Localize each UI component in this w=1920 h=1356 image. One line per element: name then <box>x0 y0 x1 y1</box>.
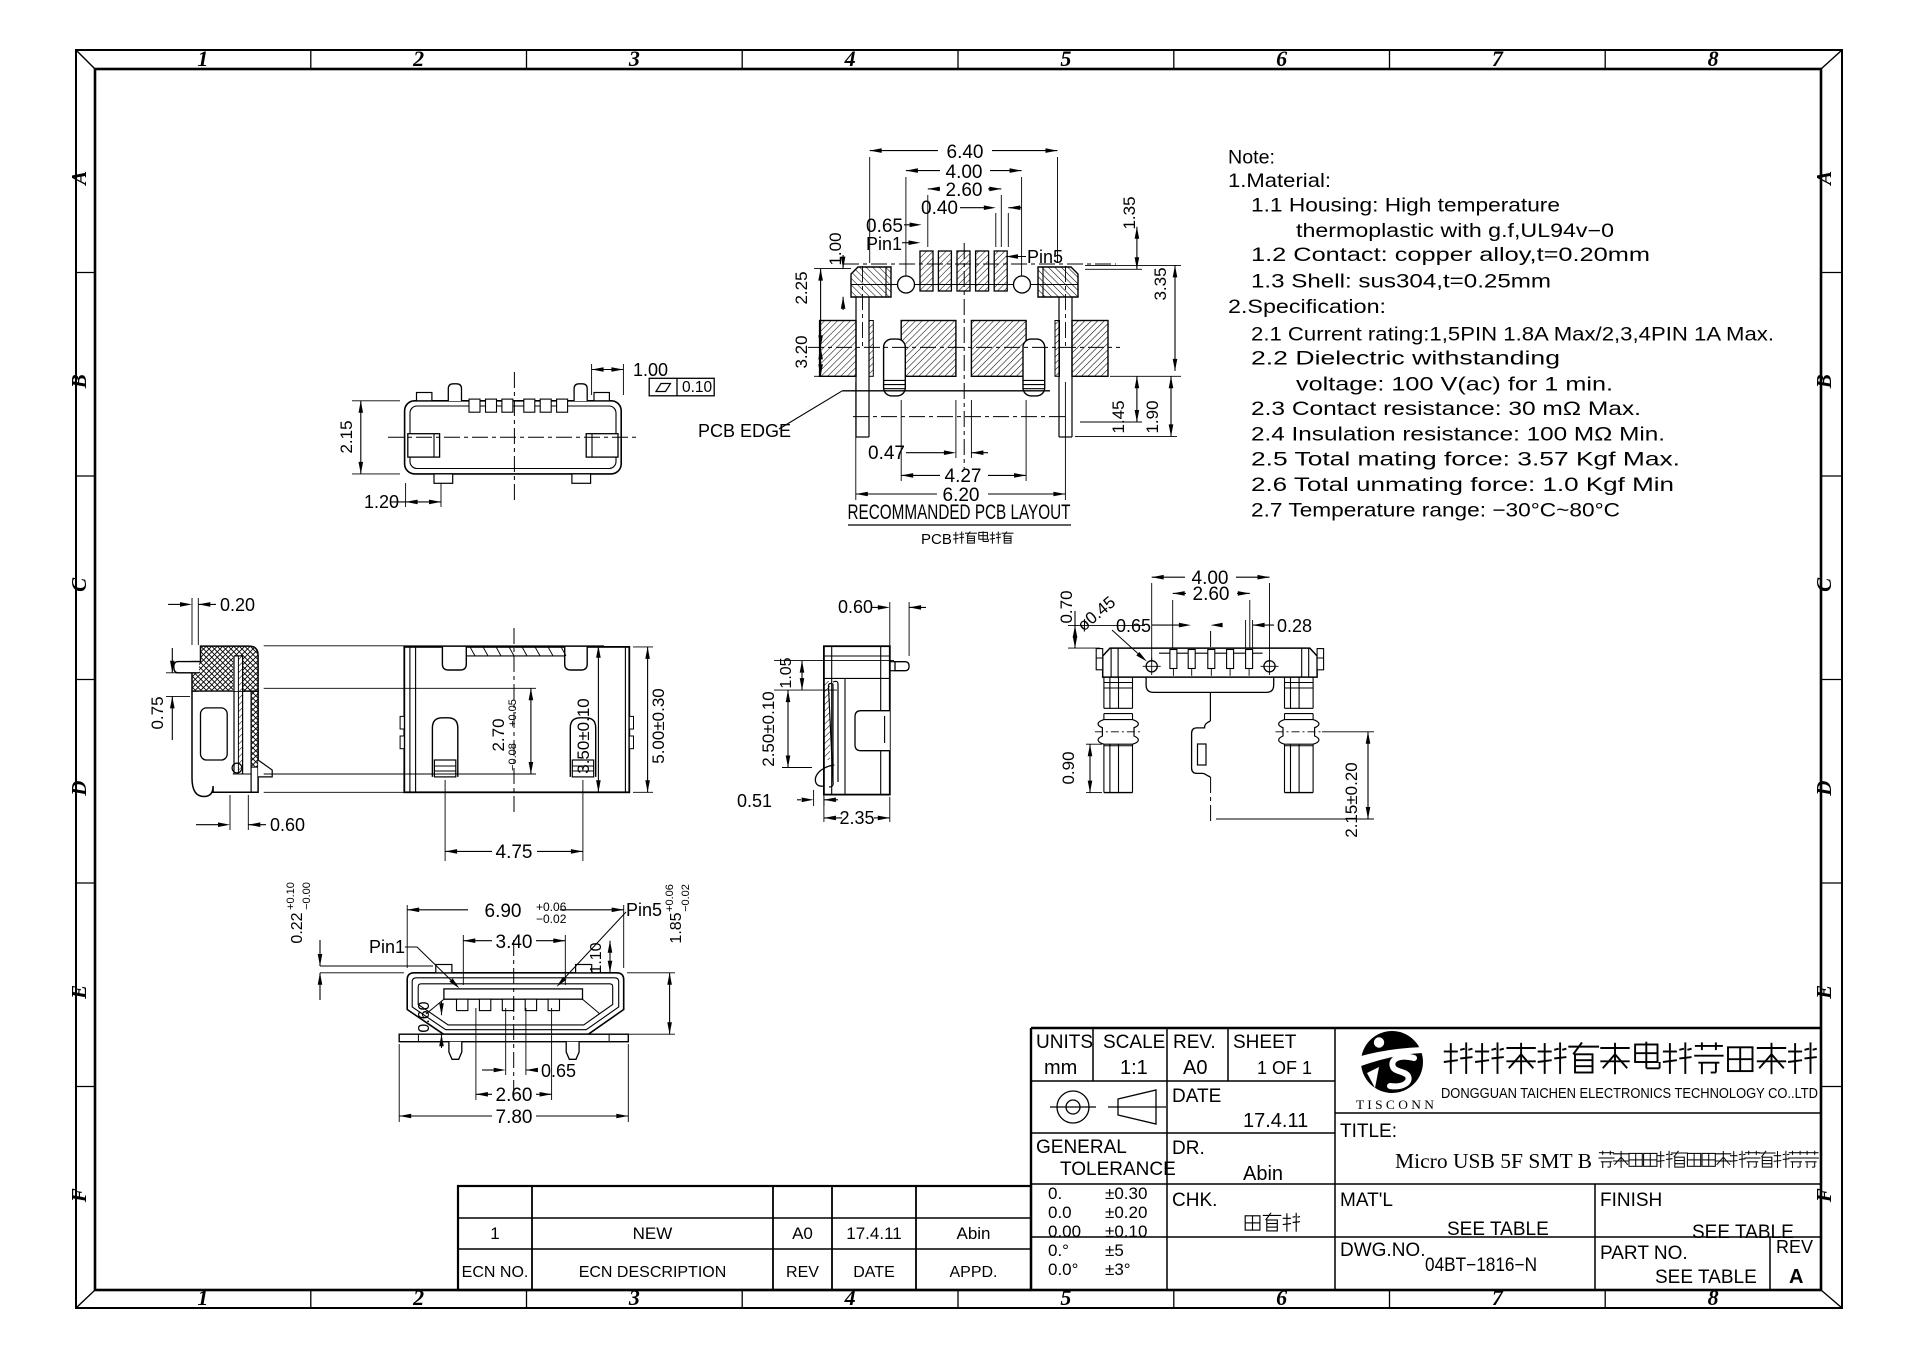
svg-text:5: 5 <box>1060 46 1071 71</box>
svg-text:2.60: 2.60 <box>496 1085 533 1106</box>
svg-text:1.3 Shell: sus304,t=0.25mm: 1.3 Shell: sus304,t=0.25mm <box>1251 271 1551 293</box>
svg-text:1.20: 1.20 <box>364 492 399 512</box>
svg-text:A: A <box>1812 171 1836 187</box>
svg-text:4.75: 4.75 <box>496 842 533 863</box>
svg-text:5: 5 <box>1060 1285 1071 1310</box>
svg-text:−0.02: −0.02 <box>680 884 692 912</box>
svg-text:+0.10: +0.10 <box>285 882 297 910</box>
svg-text:6.90: 6.90 <box>485 901 522 922</box>
svg-text:2.70: 2.70 <box>489 718 508 751</box>
svg-text:−0.02: −0.02 <box>536 912 567 926</box>
svg-text:±0.20: ±0.20 <box>1105 1203 1147 1222</box>
svg-text:2.2 Dielectric withstanding: 2.2 Dielectric withstanding <box>1251 347 1560 369</box>
svg-text:1.90: 1.90 <box>1143 400 1162 433</box>
svg-text:−0.00: −0.00 <box>301 882 313 910</box>
svg-text:TITLE:: TITLE: <box>1340 1121 1397 1142</box>
svg-text:3: 3 <box>628 46 640 71</box>
svg-text:GENERAL: GENERAL <box>1036 1137 1127 1158</box>
svg-text:±0.10: ±0.10 <box>1105 1222 1147 1241</box>
svg-text:MAT'L: MAT'L <box>1340 1190 1393 1211</box>
svg-text:APPD.: APPD. <box>949 1264 997 1281</box>
svg-text:0.20: 0.20 <box>220 595 255 615</box>
svg-text:17.4.11: 17.4.11 <box>1243 1110 1308 1132</box>
svg-text:1.00: 1.00 <box>633 360 668 380</box>
svg-text:voltage: 100 V(ac) for 1: voltage: 100 V(ac) for 1 min. <box>1296 374 1613 396</box>
svg-text:1.05: 1.05 <box>778 657 795 688</box>
svg-text:2.5 Total mating force: 3.: 2.5 Total mating force: 3.57 Kgf Max. <box>1251 449 1680 471</box>
svg-text:3.20: 3.20 <box>792 335 811 368</box>
svg-text:C: C <box>67 577 91 592</box>
svg-text:SCALE: SCALE <box>1103 1032 1165 1053</box>
svg-text:4: 4 <box>844 1285 856 1310</box>
svg-text:4: 4 <box>844 46 856 71</box>
svg-text:B: B <box>1812 374 1836 389</box>
svg-text:TOLERANCE: TOLERANCE <box>1060 1159 1176 1180</box>
svg-text:F: F <box>67 1188 91 1203</box>
svg-text:2.4 Insulation resistance:: 2.4 Insulation resistance: 100 MΩ Min. <box>1251 424 1665 446</box>
svg-text:04BT−1816−N: 04BT−1816−N <box>1425 1255 1537 1276</box>
svg-text:7.80: 7.80 <box>496 1107 533 1128</box>
svg-text:0.65: 0.65 <box>541 1061 576 1081</box>
svg-text:+0.05: +0.05 <box>507 699 519 727</box>
svg-text:7: 7 <box>1492 46 1504 71</box>
svg-text:0.60: 0.60 <box>416 1001 433 1032</box>
svg-text:A0: A0 <box>792 1224 813 1243</box>
svg-text:5.00±0.30: 5.00±0.30 <box>649 688 668 764</box>
svg-text:2.15: 2.15 <box>337 420 356 453</box>
svg-text:0.65: 0.65 <box>1116 616 1151 636</box>
svg-text:0.00: 0.00 <box>1048 1222 1081 1241</box>
svg-text:ECN DESCRIPTION: ECN DESCRIPTION <box>579 1264 727 1281</box>
svg-text:1: 1 <box>197 1285 208 1310</box>
svg-text:DONGGUAN TAICHEN ELECTRONICS: DONGGUAN TAICHEN ELECTRONICS TECHNOLOGY … <box>1441 1086 1818 1102</box>
svg-text:E: E <box>1812 985 1836 1000</box>
svg-text:0.47: 0.47 <box>868 443 905 464</box>
svg-text:0.°: 0.° <box>1048 1241 1069 1260</box>
svg-text:1.85: 1.85 <box>668 912 685 943</box>
svg-text:±5: ±5 <box>1105 1241 1124 1260</box>
svg-text:C: C <box>1812 577 1836 592</box>
svg-text:Micro USB 5F SMT B: Micro USB 5F SMT B <box>1395 1149 1592 1173</box>
svg-text:0.60: 0.60 <box>270 815 305 835</box>
svg-text:3.50±0.10: 3.50±0.10 <box>574 698 593 774</box>
svg-text:F: F <box>1812 1188 1836 1203</box>
svg-text:2: 2 <box>412 46 424 71</box>
svg-text:0.40: 0.40 <box>921 198 958 219</box>
svg-text:2.50±0.10: 2.50±0.10 <box>759 691 778 767</box>
svg-text:PCB EDGE: PCB EDGE <box>698 421 791 441</box>
svg-text:Pin1: Pin1 <box>369 937 405 957</box>
svg-text:1:1: 1:1 <box>1120 1057 1148 1079</box>
svg-text:Abin: Abin <box>956 1224 990 1243</box>
svg-text:2: 2 <box>412 1285 424 1310</box>
svg-text:1.Material:: 1.Material: <box>1228 170 1331 192</box>
svg-text:1.1 Housing: High temperatu: 1.1 Housing: High temperature <box>1251 195 1560 217</box>
svg-text:2.60: 2.60 <box>1193 584 1230 605</box>
svg-text:2.1 Current rating:1,5PIN 1: 2.1 Current rating:1,5PIN 1.8A Max/2,3,4… <box>1251 324 1774 346</box>
svg-text:2.3 Contact resistance: 30: 2.3 Contact resistance: 30 mΩ Max. <box>1251 398 1641 420</box>
svg-text:REV: REV <box>1776 1237 1813 1257</box>
svg-text:6.40: 6.40 <box>947 142 984 163</box>
svg-text:±3°: ±3° <box>1105 1260 1131 1279</box>
svg-text:1: 1 <box>197 46 208 71</box>
svg-text:1.2 Contact: copper alloy,t: 1.2 Contact: copper alloy,t=0.20mm <box>1251 244 1650 266</box>
svg-text:0.28: 0.28 <box>1277 616 1312 636</box>
svg-text:3: 3 <box>628 1285 640 1310</box>
svg-text:8: 8 <box>1708 46 1719 71</box>
svg-text:E: E <box>67 985 91 1000</box>
svg-text:3.40: 3.40 <box>496 932 533 953</box>
svg-text:UNITS: UNITS <box>1036 1032 1093 1053</box>
svg-text:1.10: 1.10 <box>588 942 605 973</box>
svg-text:ECN NO.: ECN NO. <box>462 1264 529 1281</box>
svg-text:1.45: 1.45 <box>1109 400 1128 433</box>
svg-text:PCB: PCB <box>921 531 952 548</box>
svg-text:DWG.NO.: DWG.NO. <box>1340 1240 1426 1261</box>
svg-text:0.10: 0.10 <box>682 379 713 396</box>
svg-text:D: D <box>1812 781 1836 797</box>
svg-text:6: 6 <box>1276 1285 1287 1310</box>
svg-text:B: B <box>67 374 91 389</box>
svg-text:1 OF 1: 1 OF 1 <box>1257 1058 1312 1078</box>
svg-text:Pin5: Pin5 <box>1027 247 1063 267</box>
svg-text:0.70: 0.70 <box>1057 590 1076 623</box>
svg-text:0.51: 0.51 <box>737 791 772 811</box>
svg-text:2.6 Total unmating force:: 2.6 Total unmating force: 1.0 Kgf Min <box>1251 474 1674 496</box>
svg-text:NEW: NEW <box>633 1224 673 1243</box>
svg-text:FINISH: FINISH <box>1600 1190 1662 1211</box>
svg-text:8: 8 <box>1708 1285 1719 1310</box>
svg-text:A: A <box>1789 1266 1803 1288</box>
svg-text:3.35: 3.35 <box>1151 267 1170 300</box>
svg-text:SHEET: SHEET <box>1233 1032 1297 1053</box>
svg-text:thermoplastic with g.f,UL94v: thermoplastic with g.f,UL94v−0 <box>1296 220 1614 242</box>
svg-text:2.Specification:: 2.Specification: <box>1228 296 1386 318</box>
svg-text:−0.08: −0.08 <box>507 743 519 771</box>
svg-text:2.25: 2.25 <box>792 271 811 304</box>
svg-text:DATE: DATE <box>1172 1086 1221 1107</box>
svg-text:1.35: 1.35 <box>1120 196 1139 229</box>
svg-text:DR.: DR. <box>1172 1138 1205 1159</box>
svg-text:0.0: 0.0 <box>1048 1203 1072 1222</box>
svg-text:SEE TABLE: SEE TABLE <box>1447 1219 1549 1240</box>
svg-text:6: 6 <box>1276 46 1287 71</box>
svg-text:0.0°: 0.0° <box>1048 1260 1078 1279</box>
svg-text:Note:: Note: <box>1228 147 1275 169</box>
svg-text:4.27: 4.27 <box>945 466 982 487</box>
svg-text:SEE TABLE: SEE TABLE <box>1655 1267 1757 1288</box>
svg-text:2.15±0.20: 2.15±0.20 <box>1342 762 1361 838</box>
svg-text:7: 7 <box>1492 1285 1504 1310</box>
svg-text:±0.30: ±0.30 <box>1105 1184 1147 1203</box>
svg-text:mm: mm <box>1044 1057 1077 1079</box>
svg-text:T I S C O N N: T I S C O N N <box>1356 1097 1435 1112</box>
svg-text:Abin: Abin <box>1243 1163 1283 1185</box>
svg-text:CHK.: CHK. <box>1172 1190 1217 1211</box>
svg-text:2.35: 2.35 <box>839 808 874 828</box>
svg-text:1: 1 <box>490 1224 499 1243</box>
svg-text:DATE: DATE <box>853 1264 894 1281</box>
svg-text:0.: 0. <box>1048 1184 1062 1203</box>
svg-text:D: D <box>67 781 91 797</box>
svg-text:17.4.11: 17.4.11 <box>846 1224 901 1243</box>
svg-text:2.7 Temperature range: −30°: 2.7 Temperature range: −30°C~80°C <box>1251 499 1620 521</box>
svg-text:REV: REV <box>786 1264 819 1281</box>
svg-text:PART NO.: PART NO. <box>1600 1243 1688 1264</box>
svg-text:RECOMMANDED PCB LAYOUT: RECOMMANDED PCB LAYOUT <box>848 500 1071 524</box>
svg-text:+0.06: +0.06 <box>664 884 676 912</box>
svg-text:0.60: 0.60 <box>838 597 873 617</box>
svg-text:A: A <box>67 171 91 187</box>
svg-text:REV.: REV. <box>1173 1032 1216 1053</box>
svg-text:0.75: 0.75 <box>148 696 167 729</box>
svg-text:Pin1: Pin1 <box>866 234 902 254</box>
svg-text:Pin5: Pin5 <box>626 900 662 920</box>
svg-text:0.90: 0.90 <box>1059 751 1078 784</box>
svg-text:0.22: 0.22 <box>289 912 306 943</box>
svg-text:A0: A0 <box>1183 1057 1207 1079</box>
